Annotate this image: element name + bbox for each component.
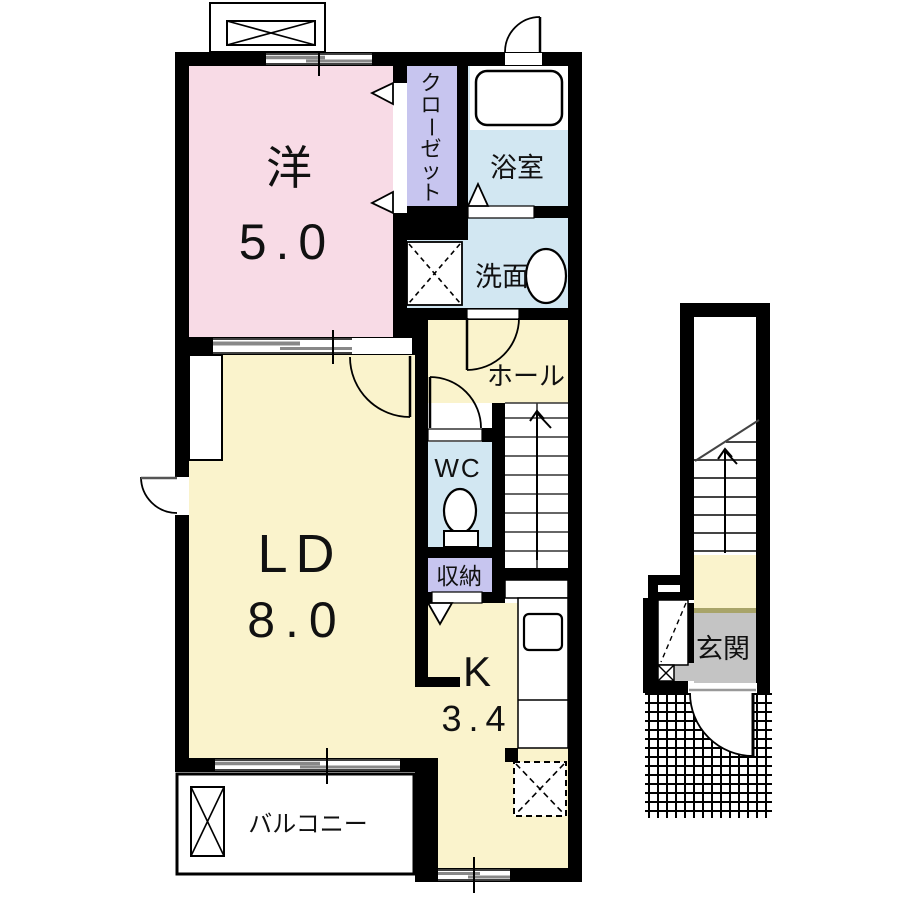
label-ld-size: 8.0 (247, 592, 347, 648)
label-entrance: 玄関 (696, 634, 750, 664)
wall-segment (534, 206, 568, 218)
stair-up-arrow-icon (718, 449, 737, 553)
stair-landing-floor (694, 555, 756, 610)
wall-segment (505, 748, 518, 762)
bathtub-icon (476, 71, 562, 125)
wall-segment (643, 598, 658, 693)
door-sill (213, 338, 363, 354)
label-storage: 収納 (436, 563, 482, 589)
refrigerator-space-icon (514, 762, 566, 816)
stair-up-arrow-icon (530, 411, 551, 560)
washbasin-icon (526, 249, 566, 303)
shoe-cabinet-box (658, 600, 688, 665)
wall-segment (415, 547, 505, 558)
door-sill (468, 206, 534, 218)
door-ld-left (141, 477, 189, 515)
arrow-barb (537, 413, 551, 428)
stairs-2f (505, 403, 568, 568)
label-closet-char: ク (421, 72, 442, 95)
counter-top (505, 580, 568, 598)
toilet-icon (444, 489, 478, 547)
label-washroom: 洗面 (475, 262, 529, 292)
landing-step-edge (694, 608, 756, 613)
toilet-bowl (444, 489, 476, 533)
washer-pan-icon (407, 242, 462, 305)
door-swing-arc (141, 477, 177, 513)
wall-segment (495, 568, 580, 580)
wall-segment (415, 758, 438, 882)
wall-segment (658, 681, 688, 693)
entrance-sill (688, 683, 757, 693)
wall-segment (568, 52, 582, 882)
toilet-tank (444, 531, 478, 547)
door-sill (505, 53, 542, 65)
door-sill (393, 83, 407, 213)
floor-plan-canvas: 洋 5.0 ク ロ ー ゼ ッ ト 浴室 洗面 ホール WC 収納 LD 8.0… (0, 0, 900, 900)
stair-break-line (695, 420, 759, 461)
label-closet-char: ゼ (421, 138, 442, 161)
label-kitchen-size: 3.4 (441, 698, 512, 739)
label-western-size: 5.0 (239, 214, 336, 270)
wall-segment (680, 303, 694, 600)
door-sill (432, 592, 482, 603)
label-closet-char: ッ (421, 160, 442, 183)
wall-segment (415, 677, 460, 687)
label-hall: ホール (487, 361, 565, 391)
label-kitchen: K (463, 648, 491, 695)
wall-segment (688, 603, 694, 663)
wall-segment (415, 355, 428, 687)
door-sill (352, 338, 412, 354)
room-western-floor (189, 66, 393, 337)
wall-segment (457, 66, 468, 218)
label-ld: LD (257, 524, 342, 584)
label-bath: 浴室 (490, 153, 544, 183)
floor-plan: 洋 5.0 ク ロ ー ゼ ッ ト 浴室 洗面 ホール WC 収納 LD 8.0… (0, 0, 900, 900)
ld-niche (189, 355, 222, 460)
door-sill (467, 309, 519, 319)
label-balcony: バルコニー (248, 811, 368, 838)
door-swing-arc (505, 17, 540, 52)
label-closet-char: ト (421, 182, 442, 205)
label-western-room: 洋 (266, 142, 312, 194)
door-sill (688, 683, 757, 693)
arrow-barb (725, 451, 737, 464)
wall-segment (492, 403, 505, 592)
door-bath-vent (505, 17, 542, 65)
wall-notch (658, 585, 680, 592)
label-closet-char: ー (419, 117, 442, 138)
stairs-1f (694, 420, 759, 553)
label-wc: WC (434, 453, 481, 483)
bay-window-box (210, 3, 325, 52)
wall-segment (175, 52, 189, 772)
label-closet-char: ロ (421, 94, 442, 117)
wall-segment (756, 303, 770, 693)
sink-icon (524, 614, 562, 650)
door-sill (175, 477, 189, 515)
door-sill (428, 429, 482, 441)
